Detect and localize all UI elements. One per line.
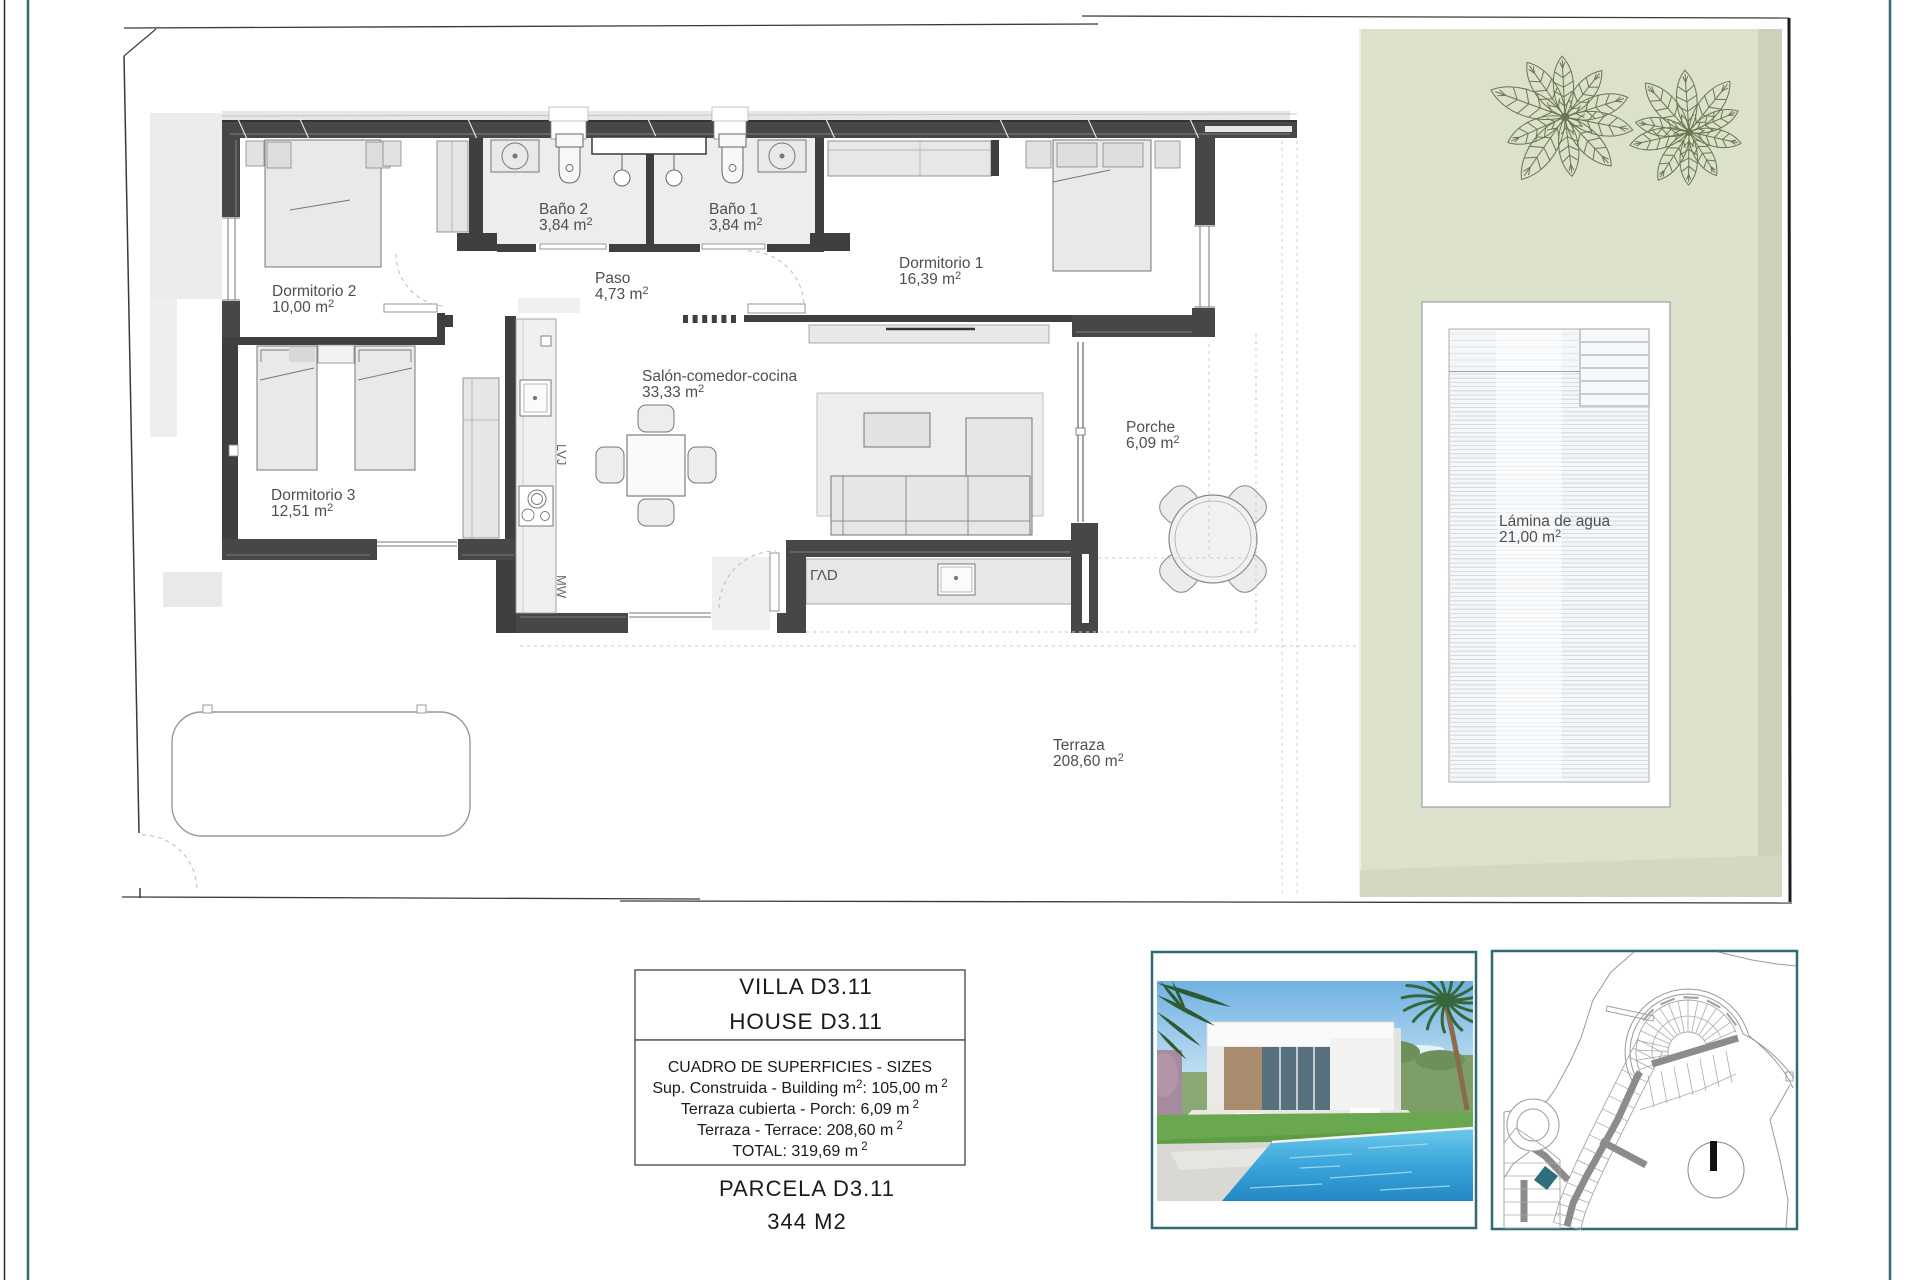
svg-text:3,84 m2: 3,84 m2 — [539, 216, 593, 234]
svg-text:ΓΛD: ΓΛD — [810, 567, 838, 584]
svg-text:Salón-comedor-cocina: Salón-comedor-cocina — [642, 368, 797, 385]
svg-text:12,51 m2: 12,51 m2 — [271, 502, 333, 520]
svg-text:CUADRO DE SUPERFICIES - SIZE: CUADRO DE SUPERFICIES - SIZES — [668, 1059, 932, 1076]
svg-text:Paso: Paso — [595, 270, 630, 287]
svg-text:PARCELA D3.11: PARCELA D3.11 — [719, 1176, 895, 1201]
svg-text:HOUSE D3.11: HOUSE D3.11 — [729, 1009, 882, 1034]
svg-text:10,00 m2: 10,00 m2 — [272, 298, 334, 316]
svg-text:21,00 m2: 21,00 m2 — [1499, 528, 1561, 546]
svg-text:16,39 m2: 16,39 m2 — [899, 270, 961, 288]
svg-text:3,84 m2: 3,84 m2 — [709, 216, 763, 234]
svg-text:TOTAL: 319,69 m 2: TOTAL: 319,69 m 2 — [732, 1141, 867, 1160]
svg-text:Terraza: Terraza — [1053, 737, 1105, 754]
svg-text:VILLA D3.11: VILLA D3.11 — [739, 974, 872, 999]
svg-text:Terraza - Terrace: 208,60 m 2: Terraza - Terrace: 208,60 m 2 — [697, 1120, 903, 1139]
svg-text:Baño 1: Baño 1 — [709, 201, 758, 218]
svg-text:6,09 m2: 6,09 m2 — [1126, 434, 1180, 452]
svg-text:4,73 m2: 4,73 m2 — [595, 285, 649, 303]
svg-text:Dormitorio 1: Dormitorio 1 — [899, 255, 983, 272]
svg-text:LVJ: LVJ — [554, 444, 569, 465]
svg-text:MW: MW — [554, 575, 569, 599]
svg-text:Dormitorio 3: Dormitorio 3 — [271, 487, 355, 504]
svg-text:Porche: Porche — [1126, 419, 1175, 436]
svg-text:208,60 m2: 208,60 m2 — [1053, 752, 1124, 770]
svg-text:33,33 m2: 33,33 m2 — [642, 383, 704, 401]
svg-text:Baño 2: Baño 2 — [539, 201, 588, 218]
svg-text:Terraza cubierta - Porch: 6,0: Terraza cubierta - Porch: 6,09 m 2 — [681, 1099, 919, 1118]
svg-text:344 M2: 344 M2 — [767, 1209, 846, 1234]
svg-text:Dormitorio 2: Dormitorio 2 — [272, 283, 356, 300]
svg-text:Sup. Construida - Building m2: Sup. Construida - Building m2: 105,00 m … — [652, 1078, 947, 1097]
